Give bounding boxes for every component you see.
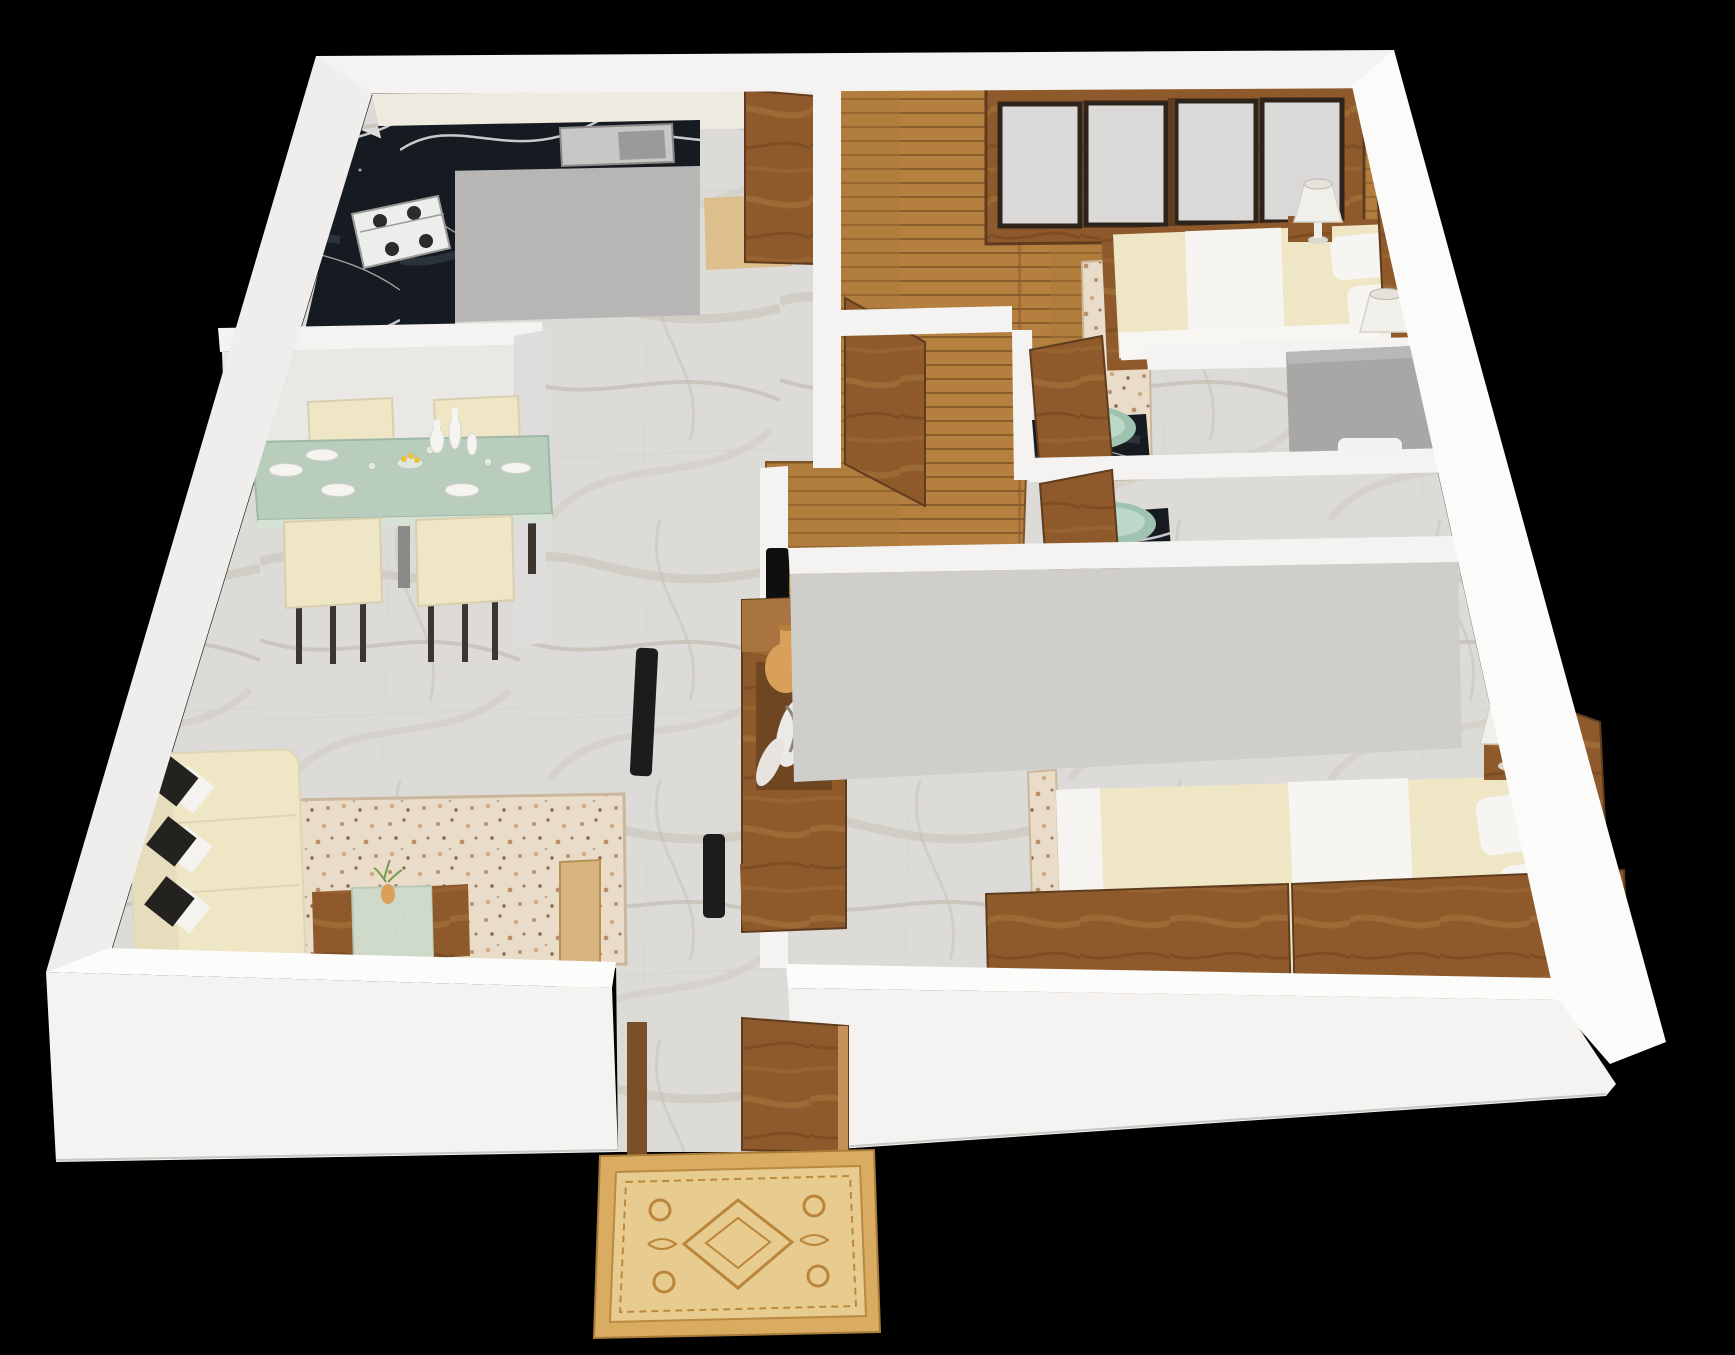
- floor-speaker: [703, 834, 725, 918]
- floor-plan-stage: [0, 0, 1735, 1355]
- doormat: [594, 1150, 880, 1338]
- dining-table-glass-top: [252, 436, 552, 520]
- kitchen-base-cabinet: [452, 163, 700, 322]
- tv-low-cabinet: [740, 860, 824, 926]
- kitchen-door-open: [745, 90, 815, 264]
- floor-plan-svg: [0, 0, 1735, 1355]
- bathroom1-door-open: [1030, 336, 1112, 472]
- front-wall-left: [46, 972, 618, 1162]
- kitchen-sink: [560, 124, 674, 166]
- entrance-door-open: [742, 1018, 848, 1152]
- entrance-door-edge: [838, 1026, 848, 1152]
- bed1-bath-wall: [841, 306, 1012, 336]
- bedroom1-left-wall: [813, 56, 841, 468]
- outer-wall-top: [316, 50, 1398, 94]
- entrance-door-jamb: [627, 1022, 647, 1156]
- bath2-bed2-wall-face: [790, 562, 1462, 782]
